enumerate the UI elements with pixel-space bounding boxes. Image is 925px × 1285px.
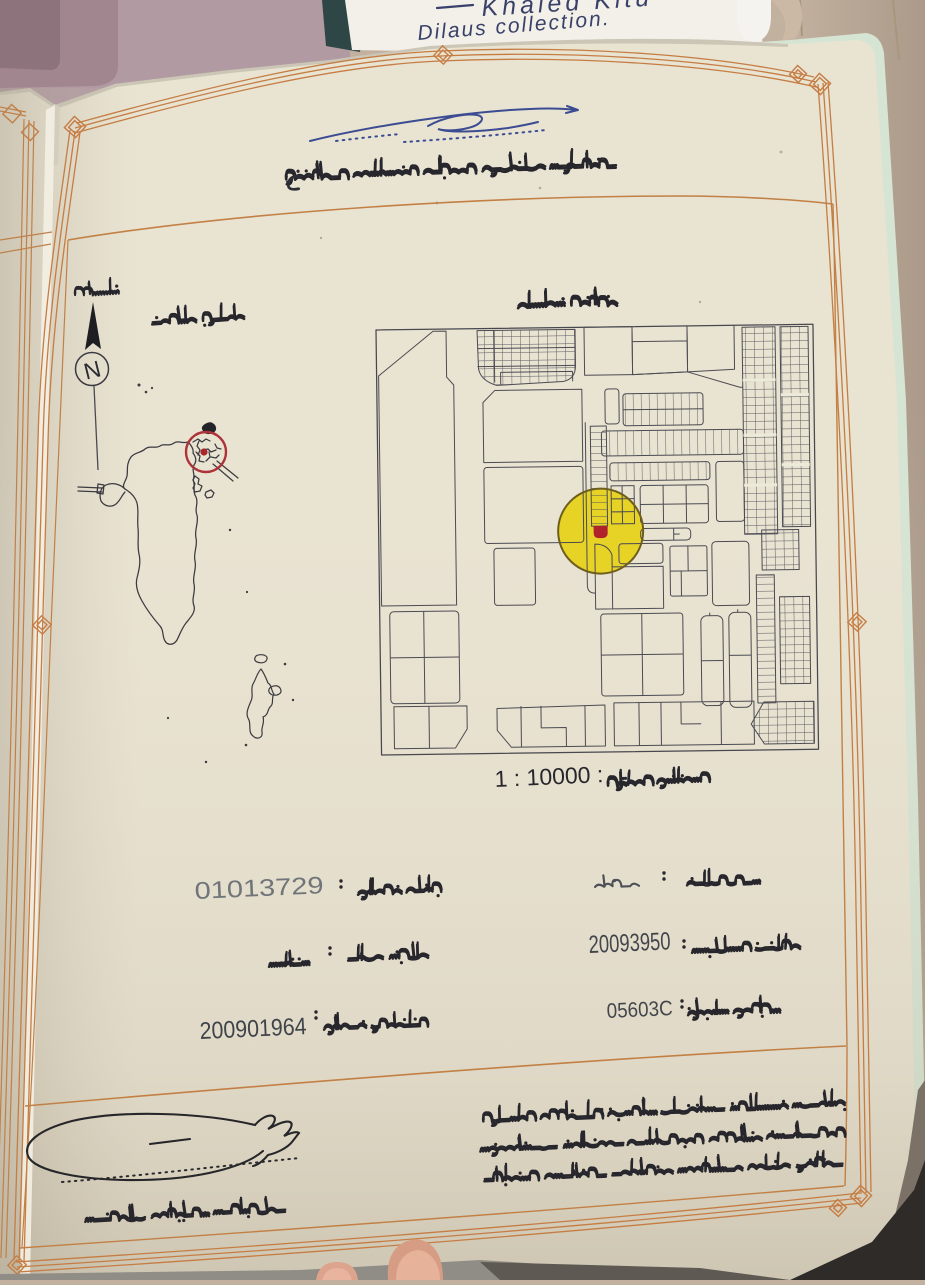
svg-text:05603C: 05603C [606, 997, 673, 1023]
svg-text:200901964: 200901964 [199, 1013, 307, 1045]
svg-text:1 : 10000 :: 1 : 10000 : [494, 761, 604, 792]
svg-text:20093950: 20093950 [588, 927, 671, 959]
